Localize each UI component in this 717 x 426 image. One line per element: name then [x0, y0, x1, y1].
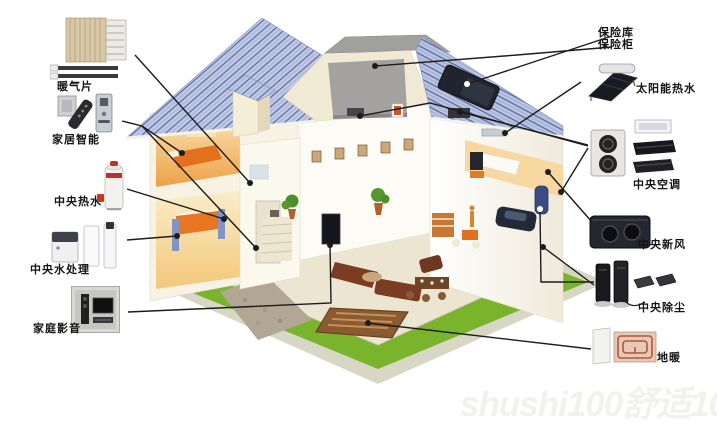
staircase: [262, 217, 292, 261]
door-lock-icon: [96, 94, 112, 132]
dust-pan-icon: [656, 274, 676, 286]
smart-home-systems-diagram: 暖气片 家居智能 中央热水 中央水处理 家庭影音 保险库 保险柜 太阳能热水 中…: [0, 0, 717, 426]
hot-water-brand-mark: [97, 194, 104, 202]
insulation-board-icon: [593, 328, 610, 364]
ceiling-cassette-icon: [635, 120, 671, 133]
vacuum-tower-icon: [612, 261, 630, 308]
label-radiator: 暖气片: [57, 78, 93, 94]
picture-frame: [312, 151, 321, 162]
label-hot-water: 中央热水: [54, 193, 102, 209]
small-table: [462, 230, 478, 240]
picture-frame: [381, 142, 390, 153]
filter-column-icon: [104, 222, 116, 268]
smart-home-product-image: [56, 92, 118, 136]
middle-wall: [300, 97, 430, 260]
ac-product-image: [589, 118, 677, 180]
tv-icon: [93, 298, 113, 313]
label-solar: 太阳能热水: [636, 80, 696, 96]
dust-pan-icon: [634, 276, 654, 288]
solar-collector-icon: [589, 64, 637, 101]
kitchen-cutaway: [156, 191, 240, 289]
label-smart-home: 家居智能: [52, 131, 100, 147]
house-illustration: [120, 5, 610, 395]
label-home-av: 家庭影音: [33, 320, 81, 336]
entrance-floor-heating-mat: [316, 308, 408, 338]
label-central-ac: 中央空调: [633, 176, 681, 192]
duct-unit-icon: [633, 140, 676, 155]
ceiling-cassette-unit: [482, 129, 506, 136]
tv: [470, 152, 483, 170]
hot-water-tank-product-image: [103, 160, 127, 216]
floor-heating-product-image: [591, 324, 663, 366]
vacuum-tower-icon: [594, 264, 612, 307]
ac-outdoor-unit-icon: [591, 130, 625, 176]
heating-pipe-icon: [54, 66, 118, 70]
water-column-device: [172, 219, 179, 251]
solar-product-image: [583, 60, 641, 102]
hot-water-tank-icon: [105, 161, 123, 210]
duct-unit-icon: [633, 159, 674, 173]
water-softener-icon: [52, 232, 78, 262]
filter-column-icon: [84, 226, 99, 266]
picture-frame: [404, 139, 413, 150]
coffee-table: [362, 272, 382, 282]
label-floor-heating: 地暖: [657, 349, 681, 365]
picture-frame: [358, 145, 367, 156]
picture-frame: [335, 148, 344, 159]
water-column-device: [218, 209, 225, 239]
watermark: shushi100舒适100: [460, 384, 717, 426]
shelving: [432, 213, 454, 237]
mannequin: [470, 206, 475, 228]
hall-ac-vent: [347, 108, 364, 116]
label-safe-box: 保险柜: [598, 36, 634, 52]
wall-tv: [322, 214, 340, 244]
heating-coil-icon: [614, 332, 656, 362]
label-water-treatment: 中央水处理: [30, 261, 90, 277]
radiator-product-image: [50, 12, 128, 80]
label-fresh-air: 中央新风: [638, 236, 686, 252]
vacuum-wall-unit: [535, 186, 548, 214]
living-ceiling-ac: [448, 108, 470, 118]
label-vacuum: 中央除尘: [638, 299, 686, 315]
